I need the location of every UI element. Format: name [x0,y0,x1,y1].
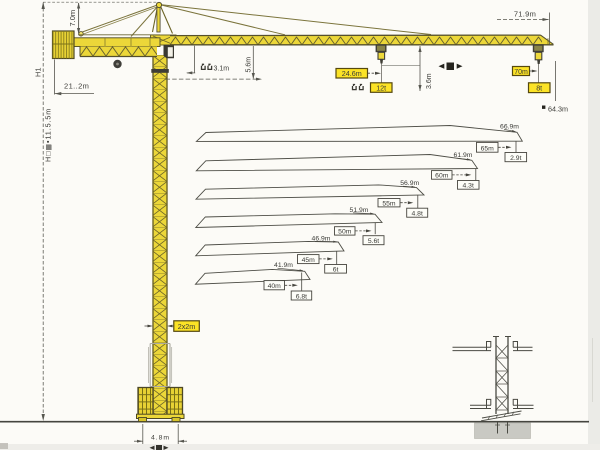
svg-text:71.9m: 71.9m [514,10,536,19]
svg-text:H□▦•11.5.5m: H□▦•11.5.5m [44,108,53,162]
svg-text:2x2m: 2x2m [178,322,196,331]
svg-text:60m: 60m [435,173,449,180]
svg-text:4.8m: 4.8m [151,435,170,442]
svg-text:8t: 8t [536,84,542,93]
svg-text:3.6m: 3.6m [426,73,433,89]
svg-text:2.9t: 2.9t [510,155,521,162]
svg-text:6.8t: 6.8t [296,293,307,300]
svg-text:4.8t: 4.8t [412,211,423,218]
svg-text:H1: H1 [34,67,43,77]
svg-text:4.3t: 4.3t [463,183,474,190]
svg-text:66.9m: 66.9m [500,123,519,130]
svg-text:12t: 12t [376,83,386,92]
svg-text:50m: 50m [338,229,352,236]
svg-text:6t: 6t [333,267,339,274]
svg-text:41.9m: 41.9m [274,262,293,269]
svg-text:64.3m: 64.3m [548,105,568,114]
svg-text:65m: 65m [481,146,495,153]
svg-text:5.6t: 5.6t [368,238,379,245]
svg-text:5.6m: 5.6m [246,57,253,73]
svg-text:45m: 45m [302,257,316,264]
svg-text:7.0m: 7.0m [68,10,77,27]
svg-text:61.9m: 61.9m [454,152,473,159]
svg-text:70m: 70m [514,69,528,76]
svg-text:24.6m: 24.6m [342,69,362,78]
svg-text:21..2m: 21..2m [64,82,89,91]
svg-text:40m: 40m [268,283,282,290]
svg-text:3.1m: 3.1m [214,66,230,73]
svg-text:55m: 55m [382,200,396,207]
